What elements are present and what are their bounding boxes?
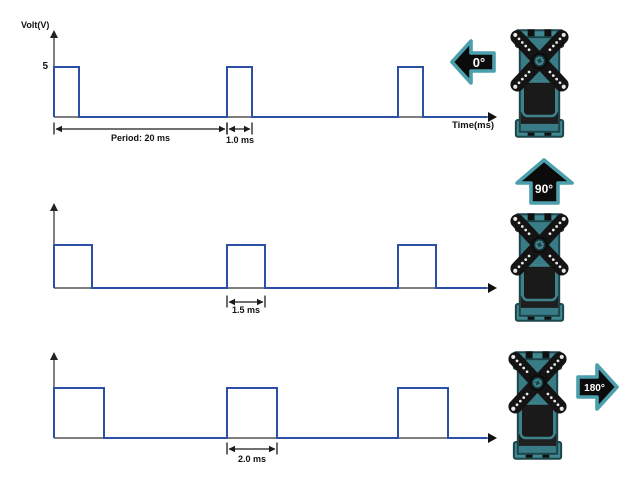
servo-motor-icon xyxy=(504,347,571,464)
period-dimension-label: Period: 20 ms xyxy=(54,134,227,144)
amplitude-tick-5: 5 xyxy=(34,61,48,72)
direction-arrow-left-icon: 0° xyxy=(450,34,496,91)
pulse-width-label-2ms: 2.0 ms xyxy=(224,455,280,465)
angle-label-90: 90° xyxy=(535,182,553,196)
servo-motor-graphic xyxy=(506,209,573,326)
angle-label-180: 180° xyxy=(584,383,605,394)
servo-motor-graphic xyxy=(504,347,571,464)
servo-motor-icon xyxy=(506,25,573,142)
direction-arrow-up-icon: 90° xyxy=(514,158,575,205)
direction-arrow-right-icon: 180° xyxy=(576,356,619,418)
waveform-panel-servo-90-degrees xyxy=(50,203,497,308)
servo-motor-graphic xyxy=(506,25,573,142)
time-axis-label: Time(ms) xyxy=(452,121,494,131)
volt-axis-label: Volt(V) xyxy=(21,21,49,31)
servo-motor-icon xyxy=(506,209,573,326)
pulse-width-label-1p5ms: 1.5 ms xyxy=(218,306,274,316)
pulse-width-label-1ms: 1.0 ms xyxy=(214,136,266,146)
waveform-panel-servo-0-degrees xyxy=(50,30,497,135)
angle-label-0: 0° xyxy=(473,55,485,70)
servo-pwm-diagram: Volt(V) 5 Time(ms) Period: 20 ms 1.0 ms … xyxy=(0,0,636,484)
waveform-panel-servo-180-degrees xyxy=(50,352,497,455)
